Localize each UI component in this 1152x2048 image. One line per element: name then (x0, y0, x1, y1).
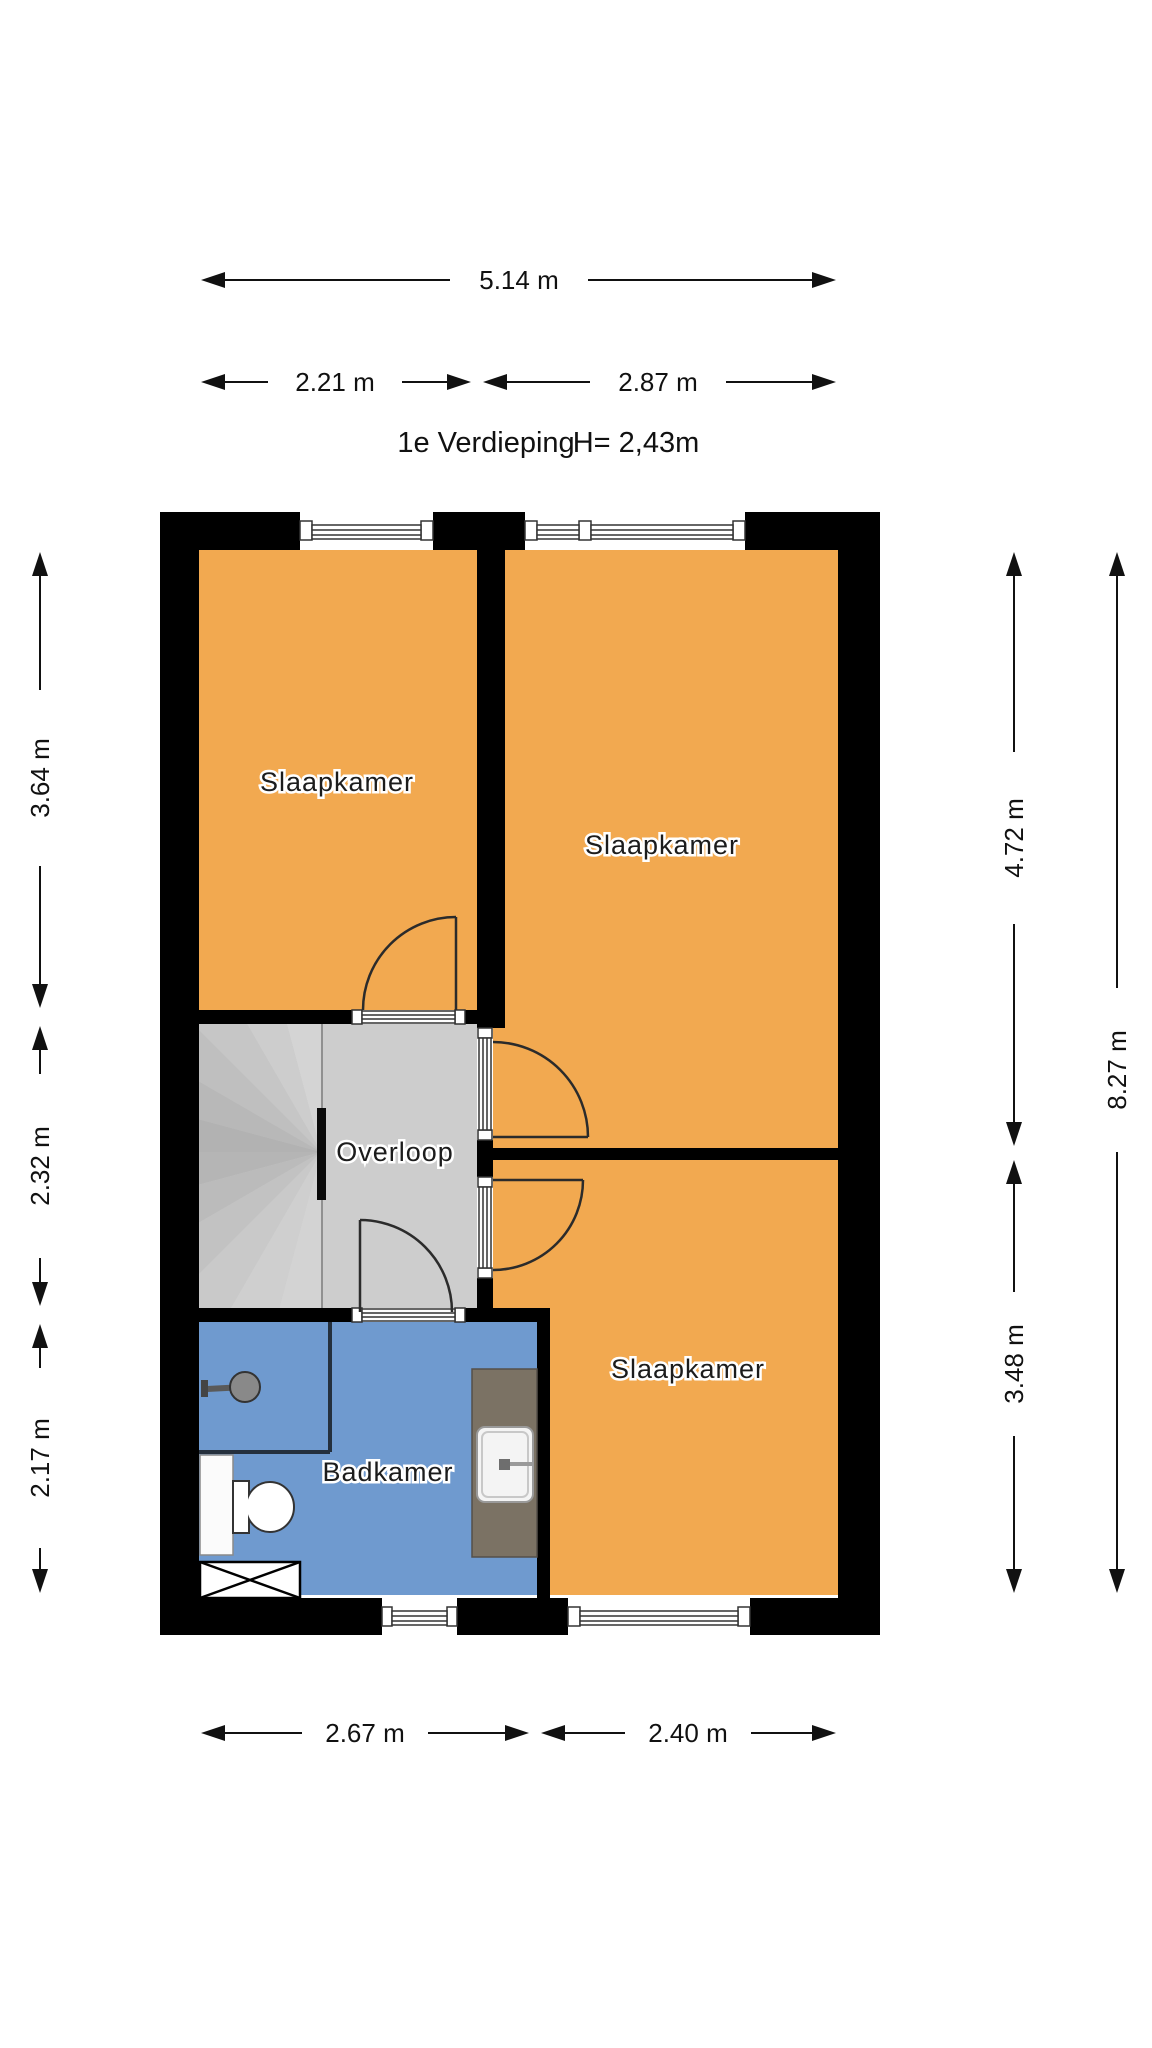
dim-top-right-label: 2.87 m (618, 367, 698, 397)
dim-top-left-label: 2.21 m (295, 367, 375, 397)
dim-bottom-right: 2.40 m (541, 1718, 836, 1748)
wall-exterior-right (838, 512, 880, 1635)
wall-landing-stub (477, 1140, 493, 1177)
label-badkamer: Badkamer (322, 1457, 453, 1487)
floorplan-drawing: 1e Verdieping H= 2,43m (0, 0, 1152, 2048)
dim-left-middle-label: 2.32 m (25, 1126, 55, 1206)
dim-right-lower-label: 3.48 m (999, 1324, 1029, 1404)
wall-exterior-left (160, 512, 199, 1635)
ceiling-height-label: H= 2,43m (573, 427, 700, 459)
plan-title: 1e Verdieping (397, 427, 574, 459)
stairs-handrail (317, 1108, 326, 1200)
dim-left-lower: 2.17 m (25, 1324, 55, 1593)
vanity-counter (472, 1369, 537, 1557)
jamb-bedroom3 (477, 1177, 493, 1278)
dim-right-upper: 4.72 m (999, 552, 1029, 1146)
dim-top-right: 2.87 m (483, 367, 836, 397)
jamb-bedroom2 (477, 1028, 493, 1140)
label-overloop: Overloop (336, 1137, 454, 1167)
wall-badkamer-bedroom3 (537, 1308, 550, 1598)
threshold-bedroom1 (352, 1010, 465, 1024)
window-top-right (525, 512, 745, 550)
wall-bedroom-divider (477, 550, 505, 1028)
dim-left-upper-label: 3.64 m (25, 738, 55, 818)
window-bottom-badkamer (382, 1598, 457, 1635)
dim-left-lower-label: 2.17 m (25, 1418, 55, 1498)
wall-exterior-top (160, 512, 880, 550)
wall-exterior-bottom (160, 1598, 880, 1635)
sink-icon (477, 1427, 533, 1502)
label-slaapkamer-1: Slaapkamer (260, 767, 414, 797)
dim-left-upper: 3.64 m (25, 552, 55, 1008)
void-hatch (200, 1562, 300, 1598)
wall-bedroom2-bedroom3 (493, 1148, 838, 1160)
window-bottom-bedroom3 (568, 1598, 750, 1635)
dim-bottom-left-label: 2.67 m (325, 1718, 405, 1748)
window-top-left (300, 512, 433, 550)
label-slaapkamer-3: Slaapkamer (611, 1354, 765, 1384)
dim-top-total: 5.14 m (201, 265, 836, 295)
dim-left-middle: 2.32 m (25, 1026, 55, 1306)
label-slaapkamer-2: Slaapkamer (585, 830, 739, 860)
dim-right-total: 8.27 m (1102, 552, 1132, 1593)
dim-top-left: 2.21 m (201, 367, 471, 397)
dim-right-upper-label: 4.72 m (999, 798, 1029, 878)
floorplan-page: 1e Verdieping H= 2,43m (0, 0, 1152, 2048)
dim-top-total-label: 5.14 m (479, 265, 559, 295)
dim-bottom-left: 2.67 m (201, 1718, 529, 1748)
threshold-badkamer (352, 1308, 465, 1322)
plan-header: 1e Verdieping H= 2,43m (397, 427, 699, 459)
dim-bottom-right-label: 2.40 m (648, 1718, 728, 1748)
dim-right-total-label: 8.27 m (1102, 1030, 1132, 1110)
dim-right-lower: 3.48 m (999, 1160, 1029, 1593)
